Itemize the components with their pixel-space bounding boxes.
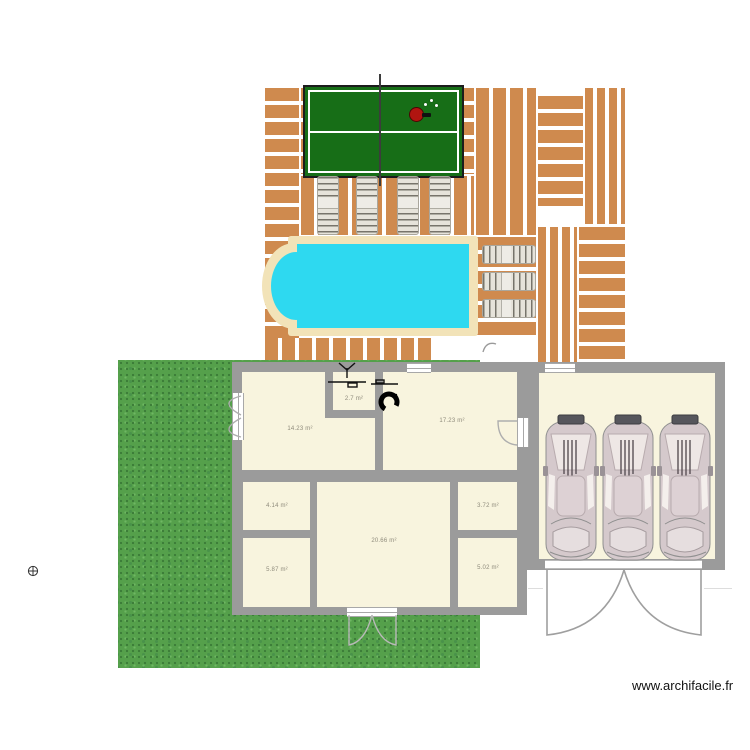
- room-area-label: 20.66 m²: [371, 538, 396, 544]
- paddle-icon[interactable]: [409, 107, 424, 122]
- table-tennis-net: [379, 74, 381, 186]
- deck-white-strip: [435, 337, 535, 362]
- ball-icon: [435, 104, 438, 107]
- room-center[interactable]: [317, 482, 450, 607]
- sun-lounger[interactable]: [356, 176, 378, 235]
- deck-curve-mark: [480, 340, 506, 354]
- sun-lounger[interactable]: [429, 176, 451, 235]
- pool-water[interactable]: [297, 244, 469, 328]
- ball-icon: [430, 99, 433, 102]
- compass-icon[interactable]: [27, 565, 39, 577]
- watermark-link[interactable]: www.archifacile.fr: [632, 678, 733, 693]
- garage-cars[interactable]: [539, 412, 715, 562]
- bathroom-fixture-icon[interactable]: [326, 362, 400, 390]
- room-bottom-right[interactable]: [458, 538, 517, 607]
- room-area-label: 5.02 m²: [477, 565, 499, 571]
- sun-lounger[interactable]: [482, 299, 536, 318]
- plan-symbol-crescent[interactable]: [377, 389, 401, 415]
- deck-panel-low-right[interactable]: [579, 227, 625, 362]
- sun-lounger[interactable]: [317, 176, 339, 235]
- window-garage-top[interactable]: [545, 363, 575, 373]
- sun-lounger[interactable]: [482, 272, 536, 291]
- deck-panel-mid-right[interactable]: [538, 227, 577, 362]
- car-icon[interactable]: [600, 415, 656, 560]
- deck-panel-top-right[interactable]: [538, 96, 583, 206]
- room-area-label: 14.23 m²: [287, 426, 312, 432]
- garage-door-swing-icon[interactable]: [544, 569, 704, 639]
- deck-panel-right-col[interactable]: [476, 88, 536, 235]
- guide-line: [704, 588, 732, 589]
- sun-lounger[interactable]: [397, 176, 419, 235]
- floor-plan-canvas: 14.23 m² 2.7 m² 17.23 m² 4.14 m² 5.87 m²…: [0, 0, 750, 750]
- room-area-label: 2.7 m²: [345, 396, 363, 402]
- car-icon[interactable]: [657, 415, 713, 560]
- table-tennis-table[interactable]: [303, 85, 464, 178]
- guide-line: [528, 588, 543, 589]
- room-area-label: 3.72 m²: [477, 503, 499, 509]
- ball-icon: [424, 103, 427, 106]
- car-icon[interactable]: [543, 415, 599, 560]
- room-area-label: 4.14 m²: [266, 503, 288, 509]
- door-swing-icon[interactable]: [493, 419, 519, 447]
- casement-window-icon[interactable]: [216, 392, 243, 441]
- deck-panel-far-right[interactable]: [585, 88, 625, 224]
- room-area-label: 17.23 m²: [439, 418, 464, 424]
- window-top-wall[interactable]: [407, 363, 431, 373]
- sun-lounger[interactable]: [482, 245, 536, 264]
- french-door-icon[interactable]: [347, 614, 398, 648]
- deck-panel-below-pool[interactable]: [265, 338, 435, 362]
- room-area-label: 5.87 m²: [266, 567, 288, 573]
